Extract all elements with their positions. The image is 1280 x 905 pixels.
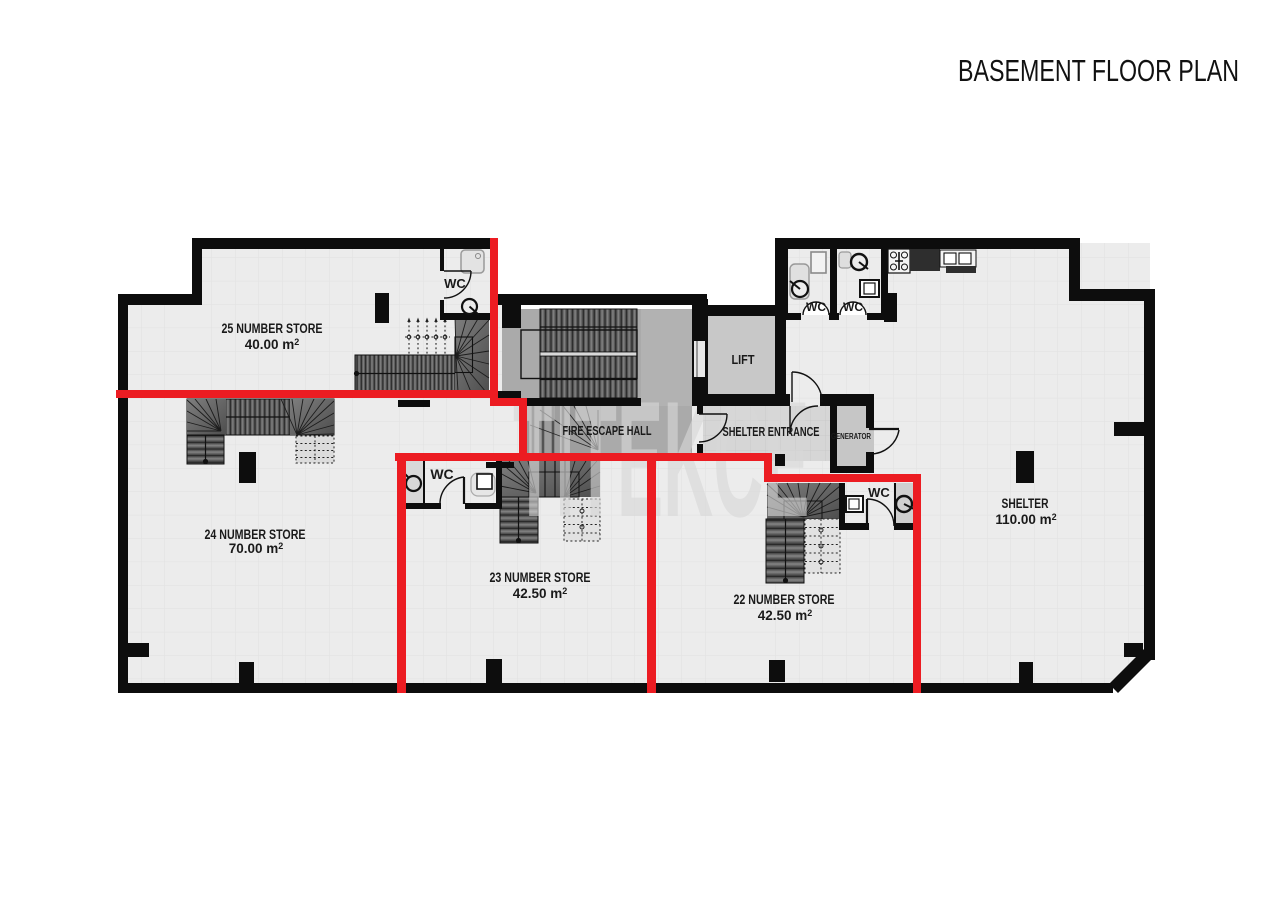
svg-text:GENERATOR: GENERATOR — [831, 432, 871, 441]
svg-text:WC: WC — [444, 276, 466, 291]
svg-text:SHELTER: SHELTER — [1002, 496, 1049, 511]
svg-text:WC: WC — [868, 485, 890, 500]
svg-text:25 NUMBER STORE: 25 NUMBER STORE — [222, 321, 323, 336]
svg-text:110.00 m2: 110.00 m2 — [995, 512, 1056, 527]
svg-text:LIFT: LIFT — [732, 352, 755, 367]
svg-text:70.00 m2: 70.00 m2 — [229, 541, 284, 556]
svg-text:23 NUMBER STORE: 23 NUMBER STORE — [490, 570, 591, 585]
svg-text:FIRE ESCAPE HALL: FIRE ESCAPE HALL — [563, 423, 652, 438]
svg-text:SHELTER ENTRANCE: SHELTER ENTRANCE — [723, 425, 820, 439]
svg-text:22 NUMBER STORE: 22 NUMBER STORE — [734, 592, 835, 607]
svg-text:40.00 m2: 40.00 m2 — [245, 337, 300, 352]
svg-text:WC: WC — [430, 466, 453, 482]
svg-text:42.50 m2: 42.50 m2 — [513, 586, 568, 601]
svg-text:BASEMENT FLOOR PLAN: BASEMENT FLOOR PLAN — [958, 54, 1239, 88]
svg-text:42.50 m2: 42.50 m2 — [758, 608, 813, 623]
svg-text:WC: WC — [843, 300, 863, 314]
svg-text:24 NUMBER STORE: 24 NUMBER STORE — [205, 527, 306, 542]
svg-text:WC: WC — [806, 300, 826, 314]
